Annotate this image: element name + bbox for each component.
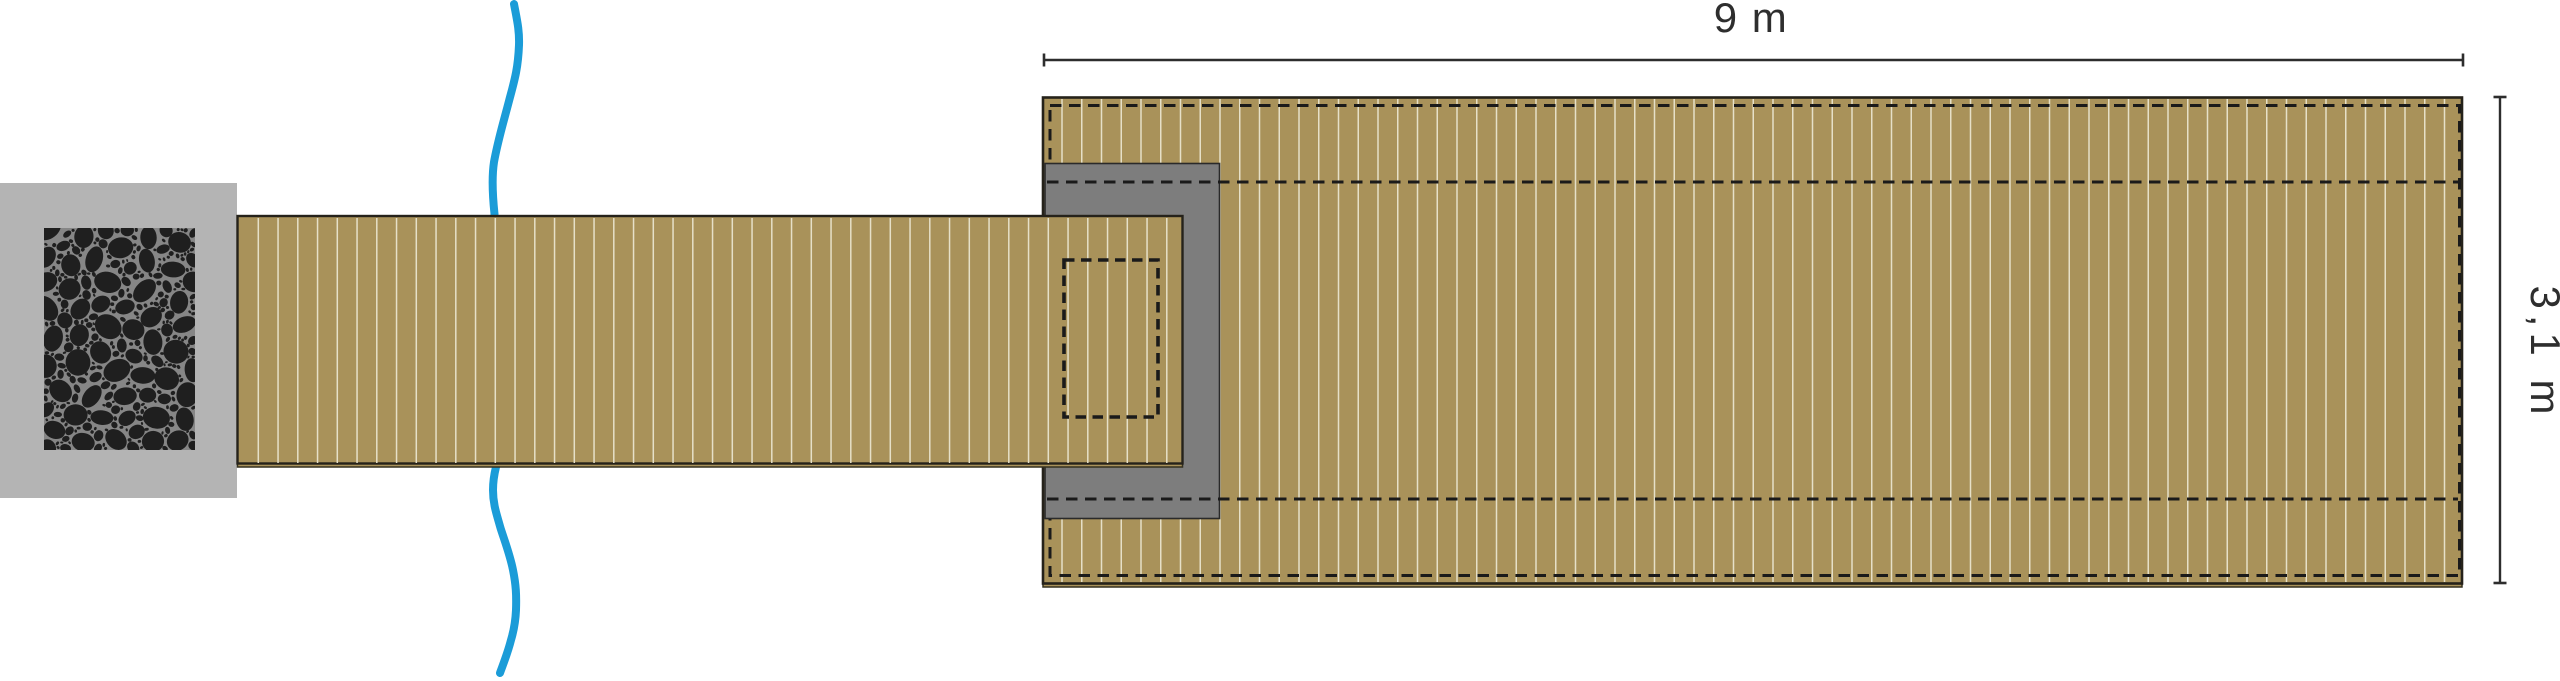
svg-text:9 m: 9 m (1714, 0, 1789, 41)
svg-text:3,1 m: 3,1 m (2522, 285, 2560, 420)
